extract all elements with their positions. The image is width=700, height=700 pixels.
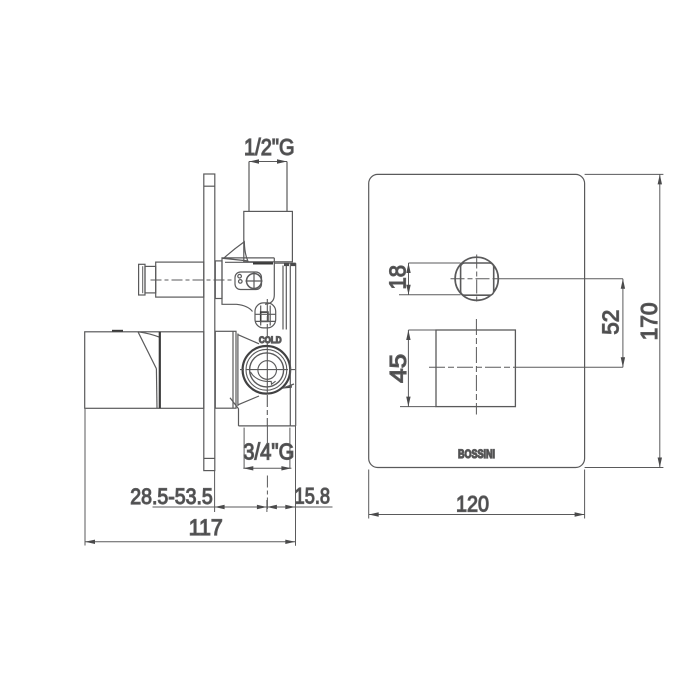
svg-text:BOSSINI: BOSSINI: [458, 449, 495, 461]
svg-text:117: 117: [189, 515, 223, 540]
svg-text:1/2"G: 1/2"G: [244, 134, 295, 160]
svg-text:15.8: 15.8: [295, 484, 331, 509]
svg-text:120: 120: [456, 491, 489, 516]
svg-text:COLD: COLD: [259, 335, 282, 345]
svg-text:3/4"G: 3/4"G: [243, 439, 294, 465]
svg-text:52: 52: [598, 310, 624, 335]
svg-text:18: 18: [385, 265, 411, 290]
svg-text:28.5-53.5: 28.5-53.5: [130, 484, 213, 509]
svg-text:170: 170: [636, 302, 662, 340]
svg-text:45: 45: [385, 354, 411, 383]
